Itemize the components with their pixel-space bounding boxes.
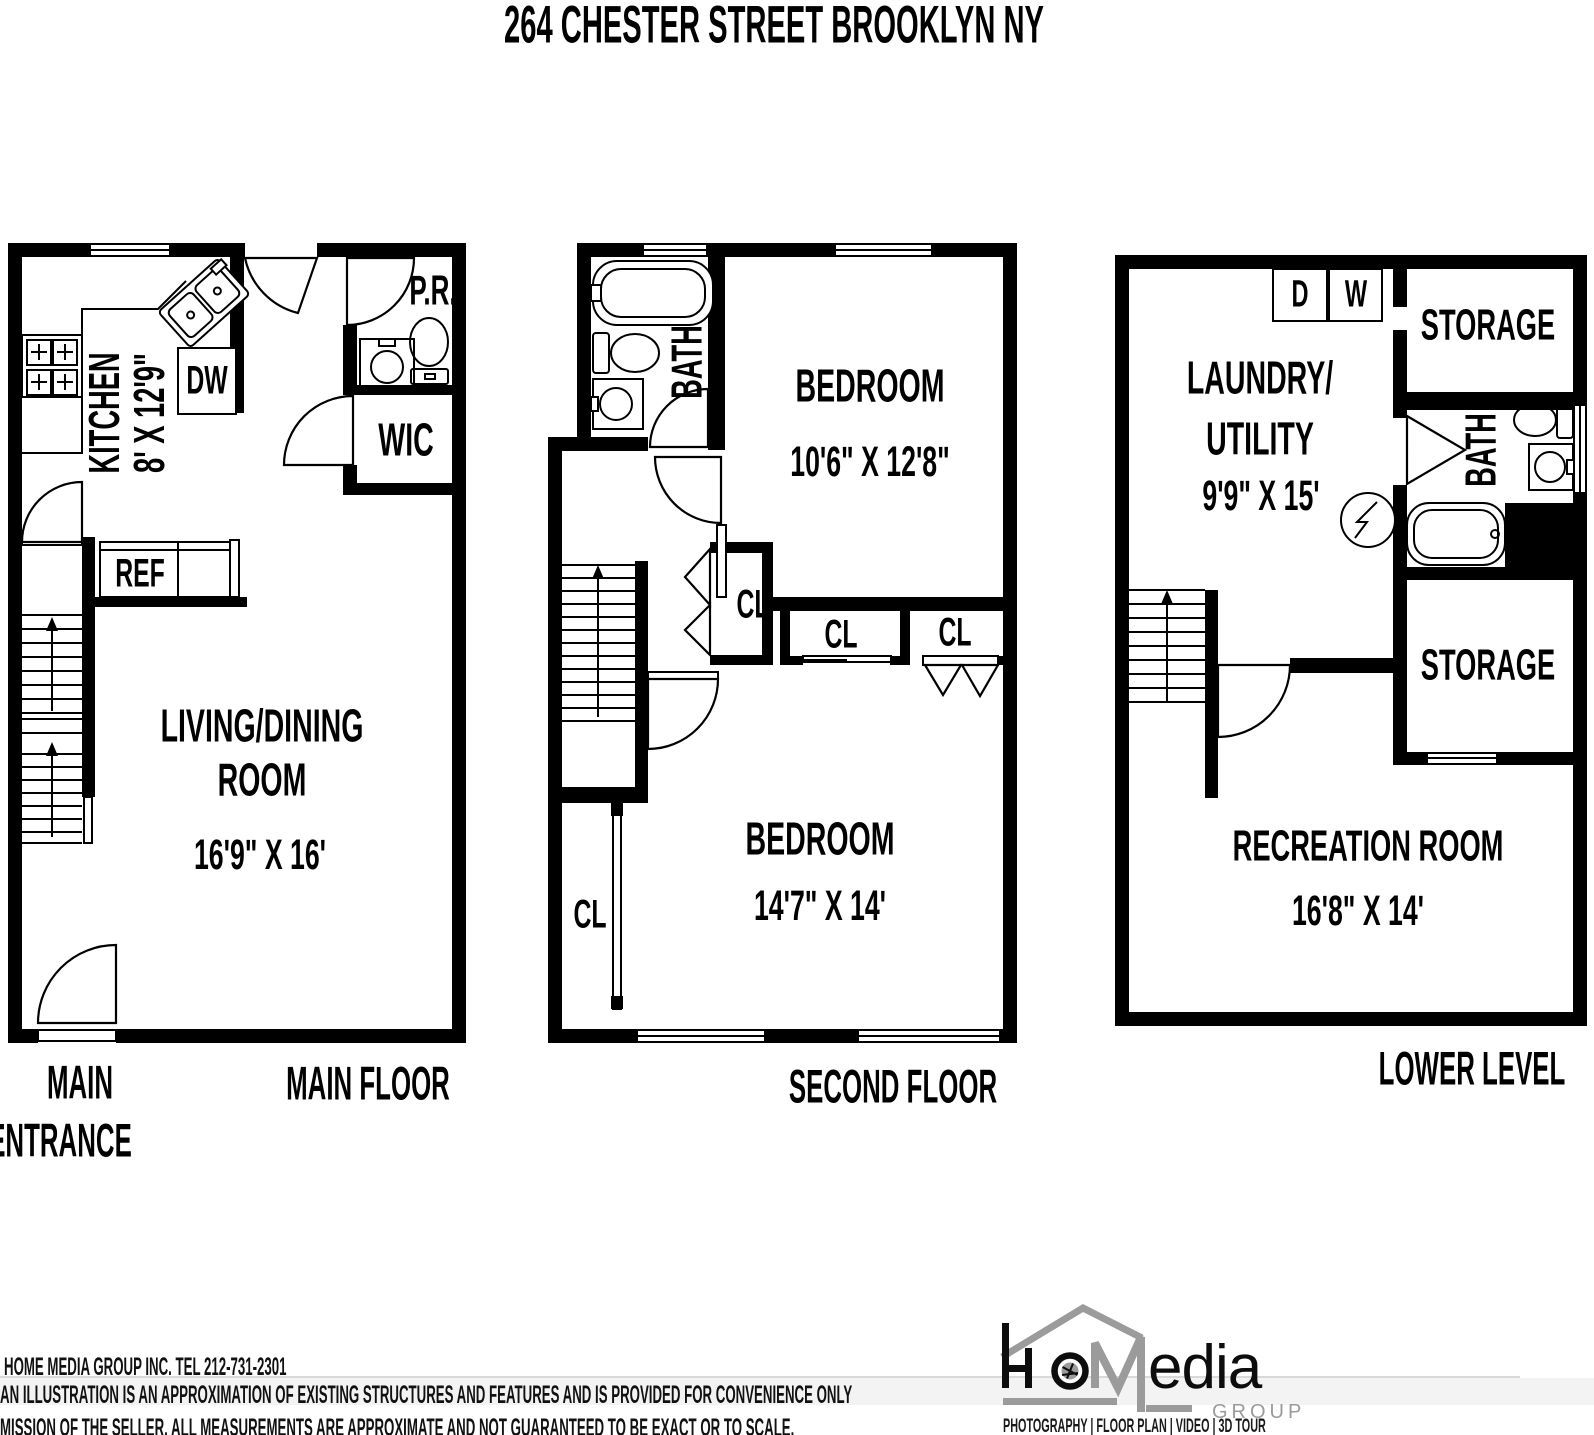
logo-roof-icon (1002, 1308, 1142, 1357)
dryer-label: D (1291, 276, 1308, 315)
dishwasher-label: DW (186, 361, 227, 402)
washer-label: W (1345, 276, 1367, 315)
logo-underline-right (1146, 1405, 1192, 1412)
partition-wall (717, 525, 726, 597)
main-entrance-label-2: ENTRANCE (0, 1117, 132, 1164)
rear-door-opening (245, 243, 317, 257)
closet2-label: CL (824, 615, 857, 656)
bathtub-icon (591, 261, 713, 325)
pr-door-arc-icon (347, 258, 414, 325)
closet3-label: CL (938, 613, 971, 654)
storage1-label: STORAGE (1421, 304, 1555, 349)
second-floor-caption: SECOND FLOOR (789, 1063, 997, 1110)
bedroom2-label: BEDROOM (746, 816, 895, 863)
walk-in-closet-label: WIC (378, 417, 433, 464)
bathtub-icon (1407, 503, 1505, 565)
refrigerator-label: REF (115, 554, 165, 595)
bath-sink-icon (591, 379, 643, 429)
stairs-icon (22, 615, 92, 843)
rear-door-arc-icon (245, 258, 317, 313)
closet4-label: CL (573, 895, 606, 936)
closet4-sliding-door (611, 803, 623, 1009)
pr-toilet-icon (410, 318, 448, 384)
stove-icon (22, 335, 82, 397)
bedroom1-dims: 10'6" X 12'8" (790, 441, 950, 485)
stairs-icon (1129, 590, 1205, 702)
closet1-label: CL (736, 585, 769, 626)
living-dining-label-2: ROOM (218, 757, 307, 804)
bedroom2-dims: 14'7" X 14' (754, 885, 886, 929)
footer-disclaimer-line-2: MISSION OF THE SELLER. ALL MEASUREMENTS … (0, 1415, 794, 1435)
page-title: 264 CHESTER STREET BROOKLYN NY (504, 0, 1044, 52)
camera-aperture-icon (1055, 1356, 1086, 1387)
floorplan-page: 264 CHESTER STREET BROOKLYN NY (0, 0, 1594, 1435)
powder-room-label: P.R. (409, 270, 456, 313)
stairs-icon (562, 565, 635, 721)
water-heater-icon (1341, 493, 1395, 547)
bedroom1-label: BEDROOM (796, 363, 945, 410)
closet1-bifold-icon (685, 549, 710, 655)
living-dining-label-1: LIVING/DINING (161, 703, 364, 750)
bath-label-lower: BATH (1460, 413, 1505, 487)
bedroom2-door-arc-icon (648, 679, 718, 749)
logo-underline-left (1003, 1398, 1117, 1405)
kitchen-label-block: KITCHEN 8' X 12'9" (83, 352, 173, 473)
bath-sink-icon (1529, 444, 1574, 490)
homedia-logo: edia GROUP PHOTOGRAPHY | FLOOR PLAN | VI… (985, 1285, 1315, 1435)
closet2-sliding-door (803, 656, 891, 662)
main-floor-plan (8, 243, 466, 1043)
laundry-door-arc-icon (1218, 665, 1290, 737)
pr-sink-icon (360, 339, 414, 391)
handrail (84, 797, 92, 843)
entrance-threshold (38, 1030, 116, 1041)
window-icon (90, 244, 170, 256)
laundry-label-2: UTILITY (1206, 416, 1314, 463)
bedroom1-door-arc-icon (655, 457, 721, 523)
bath-label-second: BATH (666, 325, 711, 399)
logo-suffix-text: edia (1148, 1333, 1263, 1402)
living-dining-dims: 16'9" X 16' (194, 834, 326, 878)
toilet-icon (593, 333, 659, 373)
logo-letter-h (1002, 1323, 1032, 1388)
closet3-bifold-icon (923, 656, 998, 696)
storage2-label: STORAGE (1421, 644, 1555, 689)
lower-level-caption: LOWER LEVEL (1379, 1045, 1566, 1092)
main-floor-caption: MAIN FLOOR (286, 1060, 450, 1107)
recreation-room-dims: 16'8" X 14' (1292, 890, 1424, 934)
kitchen-dims: 8' X 12'9" (128, 352, 173, 473)
laundry-label-1: LAUNDRY/ (1187, 355, 1333, 402)
recreation-room-label: RECREATION ROOM (1233, 825, 1504, 870)
logo-tagline: PHOTOGRAPHY | FLOOR PLAN | VIDEO | 3D TO… (1003, 1416, 1266, 1435)
wic-door-arc-icon (284, 396, 353, 465)
laundry-dims: 9'9" X 15' (1202, 475, 1319, 519)
kitchen-label: KITCHEN (83, 352, 128, 473)
kitchen-door-arc-icon (22, 482, 82, 542)
entrance-door-arc-icon (38, 945, 116, 1023)
footer-disclaimer-line-1: AN ILLUSTRATION IS AN APPROXIMATION OF E… (0, 1382, 852, 1410)
main-entrance-label-1: MAIN (47, 1059, 113, 1106)
footer-company-line: HOME MEDIA GROUP INC. TEL 212-731-2301 (4, 1354, 287, 1382)
